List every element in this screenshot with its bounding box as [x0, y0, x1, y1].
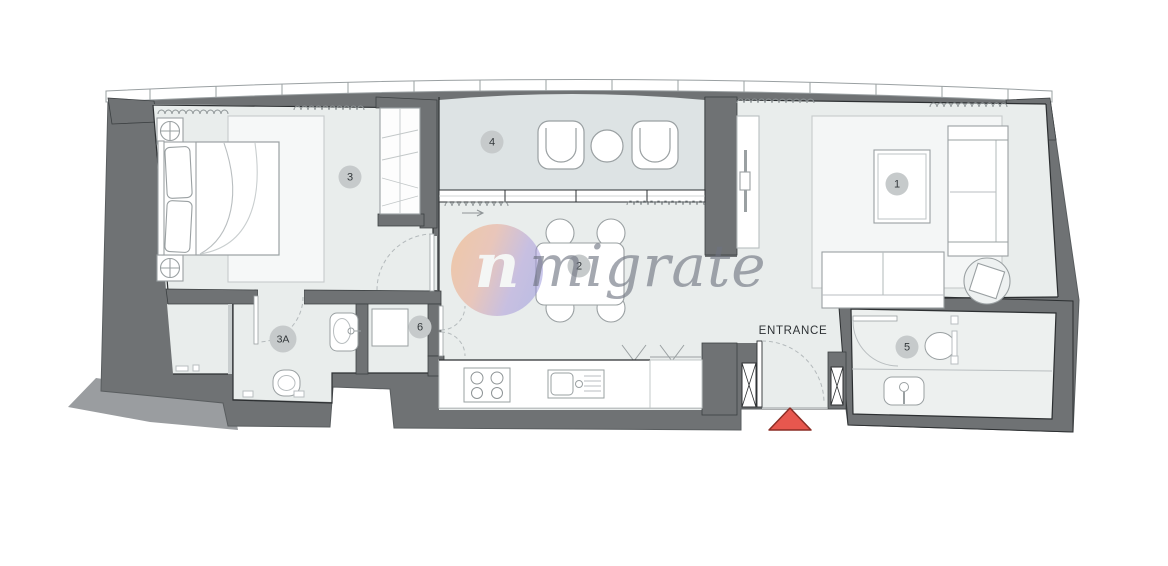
pillow-bottom: [165, 200, 193, 252]
glass-partition-shower: [228, 304, 232, 374]
entrance-label: ENTRANCE: [759, 325, 828, 337]
washer: [372, 309, 408, 346]
floor-shower-room: [167, 304, 228, 374]
stove: [464, 368, 510, 402]
balcony-slider: [439, 190, 705, 202]
room-badge-balcony: 4: [481, 131, 504, 154]
door-leaf-laundry-bottom: [439, 332, 443, 356]
door-leaf-ensuite: [254, 296, 258, 344]
floorplan-page: 1 2 3 3A 4 5 6 ENTRANCE n migrate: [0, 0, 1168, 566]
pillow-top: [165, 146, 193, 198]
entrance-marker-icon: [769, 408, 811, 430]
door-leaf-laundry-top: [439, 306, 443, 330]
door-leaf-entrance: [757, 341, 762, 407]
room-badge-bathroom: 5: [896, 336, 919, 359]
furniture-kitchen: [439, 357, 702, 408]
room-badge-laundry: 6: [409, 316, 432, 339]
room-badge-ensuite: 3A: [270, 326, 297, 353]
door-leaf-bedroom: [430, 234, 434, 291]
room-badge-living: 1: [886, 173, 909, 196]
floorplan-drawing: [0, 0, 1168, 566]
door-leaf-bathroom5: [853, 316, 897, 321]
wall-wardrobe-foot: [378, 214, 424, 226]
room-badge-bedroom: 3: [339, 166, 362, 189]
room-badge-dining: 2: [568, 255, 591, 278]
balcony-table: [591, 130, 623, 162]
sofa-right: [948, 126, 1008, 256]
bathroom5-toilet: [925, 333, 955, 360]
wall-pillar-kitchen: [702, 343, 737, 415]
wall-bedroom-bottom-left: [166, 289, 258, 304]
wall-pillar-living: [705, 97, 737, 255]
wall-bedroom-bottom-right: [304, 290, 441, 304]
